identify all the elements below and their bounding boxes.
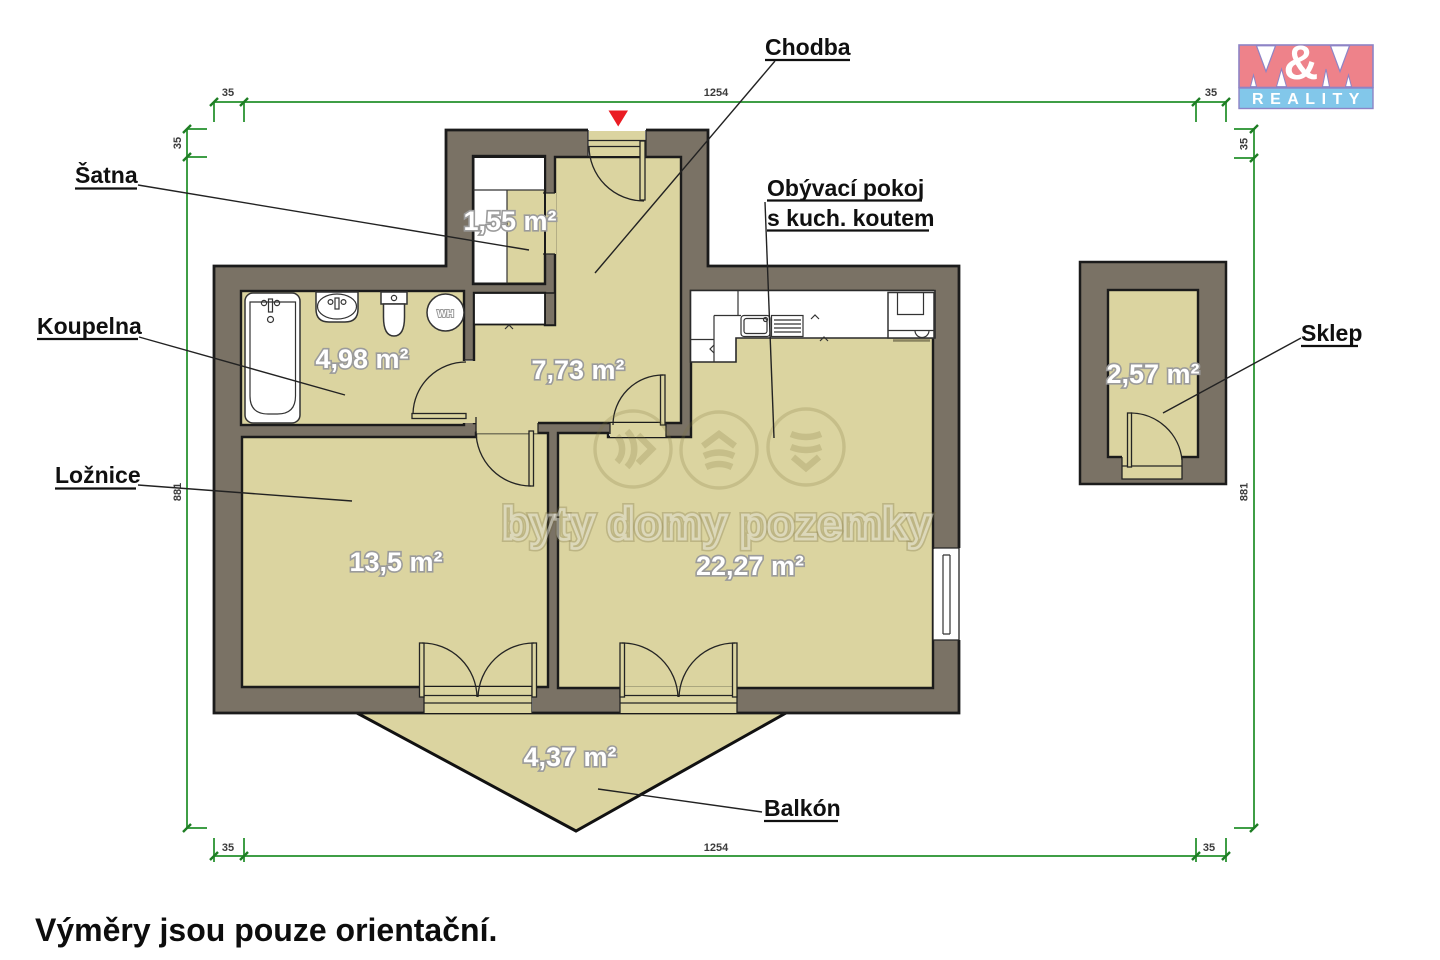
svg-text:2,57 m²: 2,57 m² [1106, 359, 1199, 389]
svg-text:Obývací pokoj: Obývací pokoj [767, 175, 924, 201]
svg-text:4,37 m²: 4,37 m² [523, 742, 616, 772]
svg-text:byty domy pozemky: byty domy pozemky [502, 498, 932, 549]
svg-text:Koupelna: Koupelna [37, 313, 142, 339]
svg-text:Sklep: Sklep [1301, 320, 1362, 346]
svg-text:Ložnice: Ložnice [55, 462, 141, 488]
svg-text:Výměry jsou pouze orientační.: Výměry jsou pouze orientační. [35, 912, 497, 948]
svg-text:35: 35 [222, 87, 234, 99]
svg-text:35: 35 [1203, 842, 1215, 854]
svg-text:s kuch. koutem: s kuch. koutem [767, 205, 934, 231]
svg-text:4,98 m²: 4,98 m² [315, 344, 408, 374]
svg-text:1254: 1254 [704, 842, 729, 854]
svg-text:881: 881 [172, 483, 184, 501]
svg-text:1,55 m²: 1,55 m² [463, 206, 556, 236]
svg-text:Balkón: Balkón [764, 795, 841, 821]
svg-text:Chodba: Chodba [765, 34, 851, 60]
svg-text:35: 35 [172, 137, 184, 149]
svg-text:22,27 m²: 22,27 m² [696, 551, 804, 581]
svg-text:Šatna: Šatna [75, 161, 138, 188]
svg-text:&: & [1284, 37, 1319, 90]
svg-text:1254: 1254 [704, 87, 729, 99]
svg-text:35: 35 [1205, 87, 1217, 99]
svg-text:881: 881 [1239, 483, 1251, 501]
svg-text:REALITY: REALITY [1252, 91, 1366, 108]
svg-text:35: 35 [222, 842, 234, 854]
svg-text:35: 35 [1239, 138, 1251, 150]
svg-text:WH: WH [437, 309, 454, 320]
svg-text:13,5 m²: 13,5 m² [349, 547, 442, 577]
svg-text:7,73 m²: 7,73 m² [531, 355, 624, 385]
